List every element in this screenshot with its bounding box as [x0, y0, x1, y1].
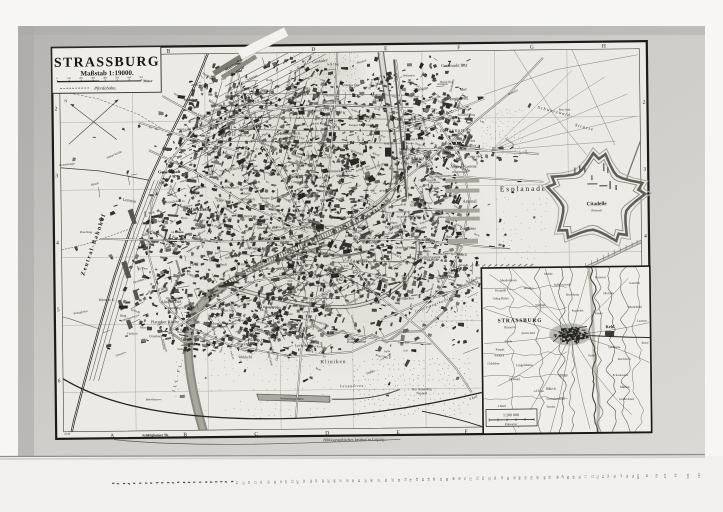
svg-text:28: 28: [321, 479, 325, 483]
svg-text:23: 23: [290, 480, 294, 484]
svg-text:137: 137: [663, 473, 667, 479]
svg-text:58: 58: [506, 477, 510, 481]
svg-text:41: 41: [403, 478, 407, 482]
svg-text:83: 83: [654, 474, 658, 478]
svg-text:56: 56: [493, 476, 497, 480]
svg-text:15: 15: [241, 481, 245, 485]
svg-text:72: 72: [590, 474, 594, 478]
svg-text:30: 30: [333, 479, 337, 483]
svg-text:25: 25: [302, 479, 306, 483]
svg-text:34: 34: [357, 479, 361, 483]
svg-text:79: 79: [631, 475, 635, 479]
svg-text:42: 42: [409, 478, 413, 482]
svg-text:74: 74: [601, 475, 605, 479]
svg-text:55: 55: [487, 477, 491, 481]
svg-text:52: 52: [468, 477, 472, 481]
svg-text:67: 67: [561, 475, 565, 479]
svg-text:20: 20: [273, 481, 277, 485]
svg-text:71: 71: [583, 475, 587, 479]
svg-text:50: 50: [457, 477, 461, 481]
svg-text:70: 70: [578, 476, 582, 480]
svg-text:59: 59: [512, 476, 516, 480]
svg-text:44: 44: [421, 478, 425, 482]
svg-text:14: 14: [235, 481, 239, 485]
svg-text:40: 40: [397, 479, 401, 483]
svg-text:39: 39: [390, 478, 394, 482]
svg-text:19: 19: [267, 480, 271, 484]
svg-text:78: 78: [625, 474, 629, 478]
svg-text:69: 69: [572, 476, 576, 480]
svg-text:46: 46: [432, 477, 436, 481]
svg-text:35: 35: [363, 479, 367, 483]
svg-text:54: 54: [481, 476, 485, 480]
svg-text:38: 38: [384, 479, 388, 483]
svg-text:49: 49: [452, 477, 456, 481]
svg-text:43: 43: [415, 478, 419, 482]
svg-text:21: 21: [279, 480, 283, 484]
svg-text:32: 32: [345, 479, 349, 483]
svg-text:53: 53: [475, 476, 479, 480]
svg-text:81: 81: [673, 474, 677, 478]
svg-text:47: 47: [439, 478, 443, 482]
svg-text:57: 57: [500, 476, 504, 480]
svg-text:36: 36: [370, 479, 374, 483]
svg-text:73: 73: [595, 475, 599, 479]
svg-text:61: 61: [524, 476, 528, 480]
svg-text:64: 64: [542, 476, 546, 480]
svg-text:60: 60: [518, 477, 522, 481]
svg-text:48: 48: [445, 478, 449, 482]
svg-text:33: 33: [351, 479, 355, 483]
svg-text:125: 125: [636, 474, 640, 480]
svg-text:31: 31: [338, 479, 342, 483]
svg-text:66: 66: [555, 476, 559, 480]
svg-text:16: 16: [247, 480, 251, 484]
svg-text:27: 27: [314, 479, 318, 483]
svg-text:91: 91: [645, 474, 649, 478]
svg-text:24: 24: [296, 480, 300, 484]
svg-text:77: 77: [619, 474, 623, 478]
svg-text:18: 18: [259, 480, 263, 484]
svg-text:63: 63: [536, 476, 540, 480]
svg-text:22: 22: [284, 480, 288, 484]
svg-text:75: 75: [606, 474, 610, 478]
svg-text:68: 68: [566, 476, 570, 480]
svg-text:111: 111: [697, 473, 701, 478]
svg-text:76: 76: [612, 475, 616, 479]
svg-text:65: 65: [548, 476, 552, 480]
svg-text:103: 103: [686, 473, 690, 479]
svg-text:37: 37: [376, 479, 380, 483]
svg-text:29: 29: [326, 479, 330, 483]
svg-text:17: 17: [253, 481, 257, 485]
svg-text:26: 26: [309, 480, 313, 484]
svg-text:51: 51: [463, 477, 467, 481]
svg-text:45: 45: [427, 478, 431, 482]
svg-text:62: 62: [530, 476, 534, 480]
